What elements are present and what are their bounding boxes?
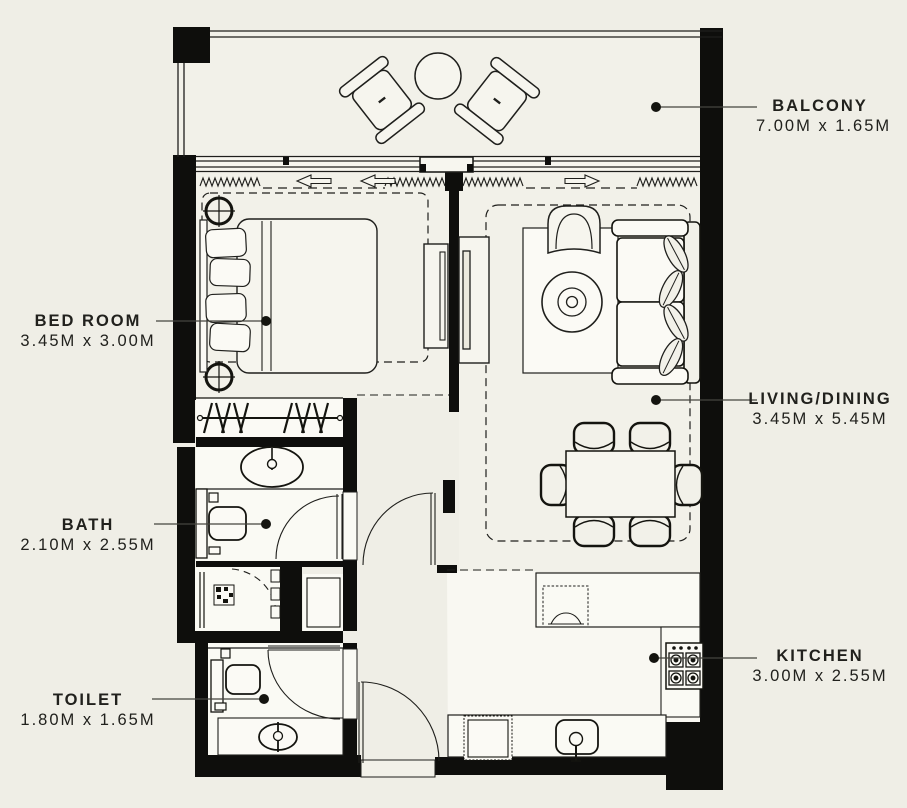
- leader-dot: [261, 316, 271, 326]
- room-dimensions: 7.00M x 1.65M: [756, 117, 891, 135]
- floor-plan: BALCONY 7.00M x 1.65M BED ROOM 3.45M x 3…: [0, 0, 907, 808]
- coffee-table-icon: [542, 272, 602, 332]
- hall-cabinet: [307, 578, 340, 627]
- room-label-toilet: TOILET 1.80M x 1.65M: [16, 690, 160, 730]
- leader-dot: [651, 395, 661, 405]
- room-label-bedroom: BED ROOM 3.45M x 3.00M: [16, 311, 160, 351]
- room-label-kitchen: KITCHEN 3.00M x 2.55M: [748, 646, 892, 686]
- tv-console: [459, 237, 489, 363]
- entry-door-swing-icon: [359, 682, 439, 777]
- mattress: [237, 219, 377, 373]
- sofa: [612, 220, 700, 384]
- round-table-icon: [415, 53, 461, 99]
- leader-dot: [651, 102, 661, 112]
- basin-icon: [241, 447, 303, 487]
- leader-dot: [649, 653, 659, 663]
- leader-dot: [259, 694, 269, 704]
- room-dimensions: 3.45M x 3.00M: [20, 332, 155, 350]
- dresser: [424, 244, 448, 348]
- room-name: BATH: [62, 516, 115, 534]
- armchair-icon: [548, 206, 600, 253]
- room-name: TOILET: [53, 691, 123, 709]
- room-dimensions: 3.00M x 2.55M: [752, 667, 887, 685]
- room-name: BALCONY: [772, 97, 868, 115]
- room-dimensions: 2.10M x 2.55M: [20, 536, 155, 554]
- room-label-bath: BATH 2.10M x 2.55M: [16, 515, 160, 555]
- stove-icon: [666, 643, 703, 689]
- room-dimensions: 1.80M x 1.65M: [20, 711, 155, 729]
- room-name: BED ROOM: [35, 312, 142, 330]
- washing-machine-icon: [214, 585, 234, 605]
- bed: [200, 219, 377, 373]
- room-dimensions: 3.45M x 5.45M: [752, 410, 887, 428]
- room-name: LIVING/DINING: [748, 390, 891, 408]
- door-frame: [271, 570, 280, 618]
- room-label-living: LIVING/DINING 3.45M x 5.45M: [748, 389, 892, 429]
- dining-table: [566, 451, 675, 517]
- room-label-balcony: BALCONY 7.00M x 1.65M: [756, 96, 884, 136]
- fridge-icon: [464, 716, 512, 760]
- hall-door-swing-icon: [363, 493, 435, 565]
- leader-dot: [261, 519, 271, 529]
- room-name: KITCHEN: [776, 647, 863, 665]
